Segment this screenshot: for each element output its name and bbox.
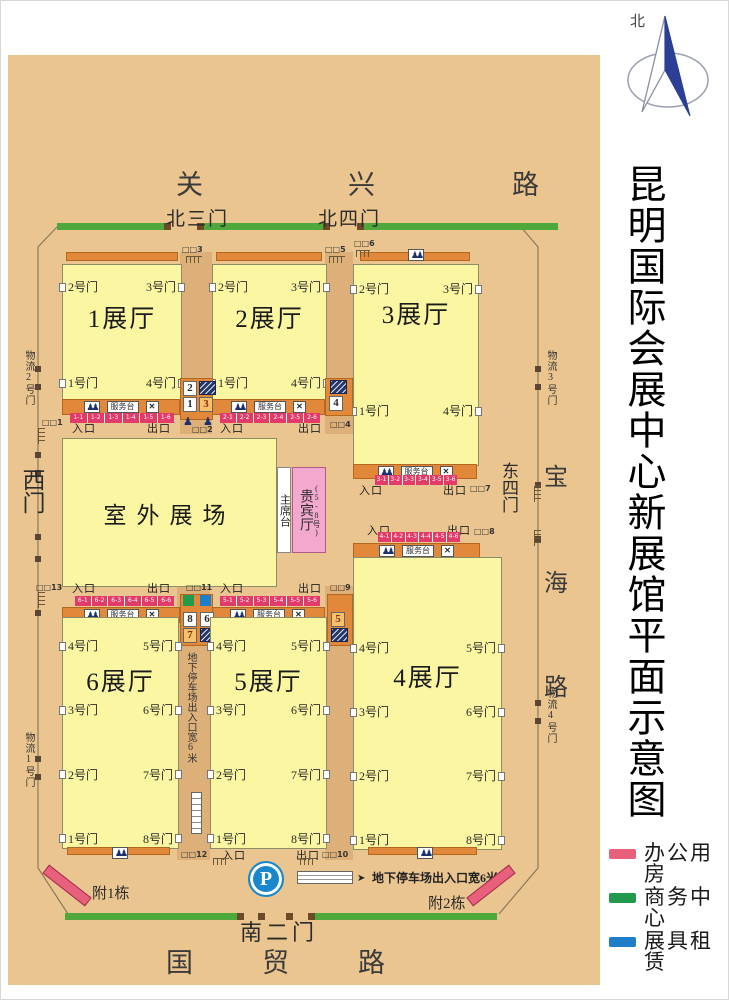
door-label: 3号门 [216,704,246,716]
fence-post [308,913,315,920]
door-label: 4号门 [359,642,389,654]
annex-1-label: 附1栋 [92,882,130,903]
door-icon [59,379,66,388]
door-label: 8号门 [466,834,496,846]
door: 1号门 [207,833,246,845]
logistics-gate-3: 物流3号门 [545,350,555,406]
page-title: 昆明国际会展中心新展馆平面示意图 [624,164,663,840]
road-north-char: 兴 [348,172,375,199]
door: 2号门 [350,770,389,782]
gate-glyph [300,858,316,865]
door: 7号门 [291,769,330,781]
wall-square [535,384,541,390]
door-label: 5号门 [291,640,321,652]
legend-swatch-rental [609,937,636,947]
door-label: 3号门 [291,281,321,293]
legend-label-business: 商务中心 [644,887,729,929]
wall-square [535,700,541,706]
door-label: 1号门 [216,833,246,845]
gate-marker-6: □□6 [354,240,375,248]
door: 7号门 [143,769,182,781]
door-icon [59,770,66,779]
door-label: 2号门 [218,281,248,293]
road-north-char: 路 [512,172,539,199]
door-label: 7号门 [143,769,173,781]
gate-marker-13: □□13 [36,584,62,592]
door-label: 3号门 [68,704,98,716]
podium: 主席台 [277,467,291,553]
road-south-char: 贸 [262,950,289,977]
canopy-hall1 [66,252,178,261]
door-icon [59,642,66,651]
gate-marker-4: □□4 [330,421,351,429]
door-icon [350,644,357,653]
wall-square [535,718,541,724]
wall-square [535,366,541,372]
door-label: 8号门 [143,833,173,845]
office-window-number: 5-5 [287,596,304,606]
gate-glyph [356,250,370,257]
south-fence-2 [308,913,497,920]
office-window-number: 3-2 [389,475,403,485]
hall-1-doors-left: 2号门1号门 [59,281,98,389]
door-label: 8号门 [291,833,321,845]
office-window-number: 1-6 [158,413,175,423]
road-east-char: 宝 [544,466,568,490]
office-window-number: 2-4 [270,413,287,423]
site-plan: 关 兴 路 国 贸 路 宝 海 路 北三门 北四门 西门 东四门 南二门 物流2… [0,0,729,1000]
door-label: 4号门 [291,377,321,389]
door: 2号门 [59,769,98,781]
door-icon [323,706,330,715]
door-label: 4号门 [68,640,98,652]
office-window-number: 5-6 [304,596,320,606]
door: 7号门 [466,770,505,782]
door-icon [209,283,216,292]
door-icon [323,283,330,292]
hall-4-doors-right: 5号门6号门7号门8号门 [466,642,505,846]
door-icon [350,285,357,294]
door-icon [59,834,66,843]
fence-post [237,913,244,920]
gate-marker-11: □□11 [186,584,212,592]
hall-5-doors-left: 4号门3号门2号门1号门 [207,640,246,845]
parking-note: 地下停车场出入口宽6米 [372,872,498,884]
compass-icon [608,6,723,128]
door-icon [207,706,214,715]
office-window-number: 6-6 [158,596,174,606]
gate-marker-5: □□5 [325,246,346,254]
office-window-bar-hall4: 4-14-24-34-44-54-6 [378,532,460,542]
hall-6-doors-right: 5号门6号门7号门8号门 [143,640,182,845]
door: 3号门 [146,281,185,293]
exit-label: 出口 [147,424,171,435]
gate-marker-8: □□8 [474,528,495,536]
wall-square [35,756,41,762]
door-icon [175,834,182,843]
service-desk-label: 服务台 [402,545,434,557]
gate-glyph [213,858,229,865]
door: 1号门 [350,834,389,846]
office-window-number: 3-4 [416,475,430,485]
door: 5号门 [143,640,182,652]
door-label: 6号门 [466,706,496,718]
office-window-number: 4-5 [433,532,447,542]
door-label: 5号门 [466,642,496,654]
equipment-rental-marker [200,595,211,606]
door: 4号门 [207,640,246,652]
door-icon [175,642,182,651]
compass-north-label: 北 [630,10,645,31]
door: 6号门 [466,706,505,718]
room-box-7: 7 [183,628,197,643]
office-window-number: 5-3 [254,596,271,606]
door: 6号门 [291,704,330,716]
hall-2-doors-right: 3号门4号门 [291,281,330,389]
office-window-number: 5-4 [270,596,287,606]
door: 8号门 [143,833,182,845]
restaurant-icon: ✕ [293,401,306,413]
room-box-1: 1 [183,397,197,412]
door-icon [498,772,505,781]
gate-marker-9: □□9 [330,584,351,592]
road-south-char: 国 [166,950,193,977]
legend-label-office: 办公用房 [644,843,729,885]
wall-square [35,774,41,780]
door-icon [498,644,505,653]
hall-2-doors-left: 2号门1号门 [209,281,248,389]
vip-hall-range: (5-8号) [312,484,320,537]
parking-icon: P [248,861,284,897]
office-window-number: 4-4 [419,532,433,542]
gate-marker-10: □□10 [322,851,348,859]
door-label: 4号门 [146,377,176,389]
gate-glyph [534,486,541,502]
door-label: 1号门 [359,834,389,846]
office-window-number: 4-6 [447,532,460,542]
gate-glyph [329,256,345,263]
gate-marker-1: □□1 [42,419,63,427]
parking-ramp-icon [191,792,202,834]
road-east-char: 海 [544,572,568,596]
hall-6: 6展厅 4号门3号门2号门1号门 5号门6号门7号门8号门 [62,617,179,849]
hall-1-doors-right: 3号门4号门 [146,281,185,389]
entrance-label: 入口 [220,584,244,595]
entrance-label: 入口 [72,584,96,595]
door: 4号门 [350,642,389,654]
hall-4: 4展厅 4号门3号门2号门1号门 5号门6号门7号门8号门 [353,557,502,850]
office-window-number: 3-3 [403,475,417,485]
podium-label: 主席台 [279,494,290,527]
room-box-5: 5 [331,612,345,627]
door-icon [323,770,330,779]
north-fence-3 [357,223,558,230]
office-window-number: 2-3 [254,413,271,423]
door: 5号门 [291,640,330,652]
door-icon [350,772,357,781]
business-center-marker [183,595,194,606]
door-label: 7号门 [466,770,496,782]
wall-square [35,534,41,540]
logistics-gate-1: 物流1号门 [23,732,33,788]
legend-label-rental: 展具租赁 [644,931,729,973]
fence-post [286,913,293,920]
door-label: 3号门 [146,281,176,293]
gate-glyph [534,530,541,546]
office-window-number: 2-2 [237,413,254,423]
office-window-bar-hall1: 1-11-21-31-41-51-6 [70,413,174,423]
door-label: 6号门 [143,704,173,716]
door-label: 4号门 [216,640,246,652]
door: 8号门 [291,833,330,845]
door: 6号门 [143,704,182,716]
door-label: 7号门 [291,769,321,781]
canopy-hall2 [216,252,322,261]
door: 2号门 [209,281,248,293]
wall-square [35,384,41,390]
office-window-number: 4-2 [392,532,406,542]
door-label: 2号门 [216,769,246,781]
exit-label: 出口 [147,584,171,595]
restroom-icon: ♟♟ [408,249,424,261]
road-south-char: 路 [358,950,385,977]
office-window-number: 4-1 [378,532,392,542]
restaurant-icon: ✕ [441,545,454,557]
legend-swatch-office [609,849,636,859]
door: 3号门 [291,281,330,293]
door: 2号门 [59,281,98,293]
south-fence-1 [65,913,237,920]
gate-north4: 北四门 [318,210,381,229]
office-window-number: 5-2 [237,596,254,606]
door-icon [207,642,214,651]
door-label: 2号门 [68,769,98,781]
door: 2号门 [207,769,246,781]
office-window-bar-hall3: 3-13-23-33-43-53-6 [375,475,457,485]
escalator-icon [199,381,216,395]
door-label: 1号门 [68,377,98,389]
service-desk-label: 服务台 [107,401,139,413]
door-icon [323,642,330,651]
door: 3号门 [443,283,482,295]
door-icon [350,708,357,717]
hall-1: 1展厅 2号门1号门 3号门4号门 [62,264,182,402]
office-window-bar-hall6: 6-16-26-36-46-56-6 [75,596,174,606]
door: 1号门 [59,833,98,845]
door-label: 1号门 [359,405,389,417]
room-box-4: 4 [329,396,343,411]
door-icon [498,708,505,717]
office-window-number: 6-3 [108,596,125,606]
door-icon [207,834,214,843]
office-window-number: 1-1 [70,413,88,423]
gate-west: 西门 [20,468,43,514]
outdoor-exhibition-ground: 室外展场 [62,438,277,587]
restroom-icon: ♟♟ [417,847,433,859]
hall-5-doors-right: 5号门6号门7号门8号门 [291,640,330,845]
restroom-icon: ♟♟ [231,401,247,413]
door: 3号门 [59,704,98,716]
entrance-label: 入口 [220,424,244,435]
door-icon [475,285,482,294]
office-window-number: 1-4 [123,413,141,423]
hall-3-doors-left: 2号门1号门 [350,283,389,417]
hall-2: 2展厅 2号门1号门 3号门4号门 [212,264,327,402]
restroom-icon: ♟♟ [379,545,395,557]
door-icon [323,834,330,843]
door: 2号门 [350,283,389,295]
office-window-number: 3-1 [375,475,389,485]
door-label: 6号门 [291,704,321,716]
gate-south2: 南二门 [240,922,318,944]
gate-marker-2: □□2 [192,426,213,434]
door-label: 3号门 [443,283,473,295]
office-window-number: 4-3 [406,532,420,542]
parking-symbol: P [260,868,272,891]
restaurant-icon: ✕ [146,401,159,413]
office-window-number: 2-1 [220,413,237,423]
office-window-number: 1-2 [88,413,106,423]
office-window-number: 6-4 [125,596,142,606]
room-box-8: 8 [183,612,197,627]
service-desk-label: 服务台 [254,401,286,413]
exit-label: 出口 [298,424,322,435]
escalator-icon [330,380,347,394]
vip-hall: 贵宾厅 (5-8号) [292,467,326,553]
gate-marker-7: □□7 [470,485,491,493]
door: 1号门 [350,405,389,417]
office-window-number: 6-2 [92,596,109,606]
exit-label: 出口 [443,486,467,497]
hall-4-doors-left: 4号门3号门2号门1号门 [350,642,389,846]
door-label: 4号门 [443,405,473,417]
door-icon [178,283,185,292]
wall-square [35,556,41,562]
office-window-number: 3-6 [444,475,457,485]
door: 3号门 [207,704,246,716]
door-label: 2号门 [359,770,389,782]
office-window-number: 2-6 [304,413,320,423]
entrance-label: 入口 [359,486,383,497]
room-box-2: 2 [183,381,197,396]
arrow-icon: ➤ [357,874,365,884]
wall-square [35,366,41,372]
annex-2-label: 附2栋 [428,892,466,913]
door-icon [475,407,482,416]
office-window-number: 6-1 [75,596,92,606]
office-window-number: 1-5 [140,413,158,423]
door-icon [59,283,66,292]
door-label: 2号门 [68,281,98,293]
office-window-bar-hall5: 5-15-25-35-45-55-6 [220,596,320,606]
door-icon [175,706,182,715]
restroom-icon: ♟♟ [112,847,128,859]
door-label: 5号门 [143,640,173,652]
office-window-number: 2-5 [287,413,304,423]
restroom-icon: ♟♟ [84,401,100,413]
office-window-number: 3-5 [430,475,444,485]
gate-glyph [38,592,45,608]
door-icon [59,706,66,715]
wall-square [35,610,41,616]
gate-marker-3: □□3 [182,246,203,254]
escalator-icon [331,628,348,642]
office-window-number: 6-5 [142,596,159,606]
door-icon [350,836,357,845]
door-icon [207,770,214,779]
gate-glyph [186,256,202,263]
gate-east4: 东四门 [500,462,517,513]
office-window-number: 1-3 [105,413,123,423]
door-icon [498,836,505,845]
service-strip-hall4: ♟♟ 服务台 ✕ [353,543,480,558]
door-label: 3号门 [359,706,389,718]
wall-square [35,452,41,458]
office-window-bar-hall2: 2-12-22-32-42-52-6 [220,413,320,423]
parking-ramp-icon [297,871,353,884]
hall-6-doors-left: 4号门3号门2号门1号门 [59,640,98,845]
door: 3号门 [350,706,389,718]
door: 1号门 [59,377,98,389]
hall-3: 3展厅 2号门1号门 3号门4号门 [353,264,479,466]
hall-5: 5展厅 4号门3号门2号门1号门 5号门6号门7号门8号门 [210,617,327,849]
door-label: 2号门 [359,283,389,295]
logistics-gate-4: 物流4号门 [545,688,555,744]
road-north-char: 关 [176,172,203,199]
logistics-gate-2: 物流2号门 [23,350,33,406]
door-label: 1号门 [68,833,98,845]
legend-swatch-business [609,893,636,903]
door: 4号门 [443,405,482,417]
door: 8号门 [466,834,505,846]
gate-north3: 北三门 [166,210,229,229]
gate-glyph [38,428,45,444]
outdoor-ground-label: 室外展场 [104,496,236,530]
corridor-parking-note: 地下停车场出入口宽6米 [185,652,195,763]
hall-3-doors-right: 3号门4号门 [443,283,482,417]
room-box-3: 3 [199,397,213,412]
door: 5号门 [466,642,505,654]
fence-post [258,913,265,920]
entrance-label: 入口 [72,424,96,435]
door-label: 1号门 [218,377,248,389]
gate-marker-12: □□12 [181,851,207,859]
north-fence-1 [57,223,171,230]
exit-label: 出口 [298,584,322,595]
door-icon [175,770,182,779]
door: 4号门 [59,640,98,652]
vip-hall-label: 贵宾厅 [298,489,312,531]
office-window-number: 5-1 [220,596,237,606]
